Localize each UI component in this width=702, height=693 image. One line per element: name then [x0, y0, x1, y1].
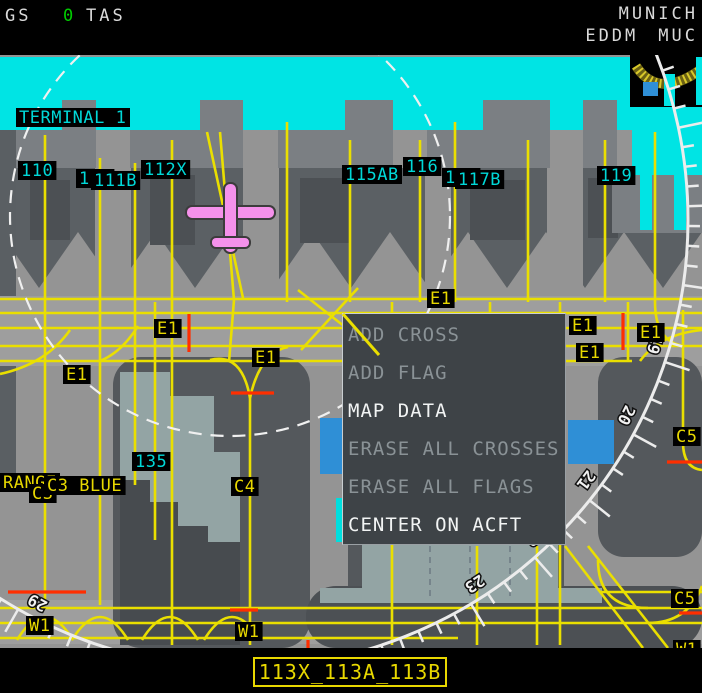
svg-text:115AB: 115AB: [345, 165, 399, 185]
tas-label: TAS: [86, 6, 126, 26]
svg-text:E1: E1: [255, 348, 276, 368]
map-label-e1: E1: [252, 348, 280, 368]
menu-item-add-cross[interactable]: ADD CROSS: [348, 316, 565, 354]
svg-text:E1: E1: [66, 365, 87, 385]
map-label-e1: E1: [569, 316, 597, 336]
airport-codes: EDDM MUC: [585, 26, 698, 46]
menu-item-center-on-acft[interactable]: CENTER ON ACFT: [348, 506, 565, 544]
blue-building-left: [320, 418, 344, 474]
map-label-e1: E1: [427, 289, 455, 309]
map-label-w1: W1: [235, 622, 263, 642]
menu-item-erase-all-crosses[interactable]: ERASE ALL CROSSES: [348, 430, 565, 468]
svg-text:TERMINAL 1: TERMINAL 1: [19, 108, 126, 128]
blue-building-small: [643, 82, 658, 96]
map-label-117b: 117B: [455, 170, 504, 190]
svg-text:C4: C4: [234, 477, 255, 497]
svg-text:119: 119: [600, 166, 632, 186]
svg-text:116: 116: [406, 157, 438, 177]
map-label-e1: E1: [637, 323, 665, 343]
blue-building-right: [568, 420, 614, 464]
map-label-115ab: 115AB: [342, 165, 402, 185]
map-label-c3-blue: C3 BLUE: [44, 476, 126, 496]
map-label-w1: W1: [673, 640, 701, 660]
menu-item-add-flag[interactable]: ADD FLAG: [348, 354, 565, 392]
airport-iata: MUC: [658, 26, 698, 46]
map-label-c5: C5: [671, 589, 699, 609]
map-label-c4: C4: [231, 477, 259, 497]
svg-text:E1: E1: [579, 343, 600, 363]
map-label-110: 110: [18, 161, 56, 181]
svg-text:112X: 112X: [144, 160, 187, 180]
svg-text:E1: E1: [640, 323, 661, 343]
svg-text:117B: 117B: [458, 170, 501, 190]
menu-item-map-data[interactable]: MAP DATA: [348, 392, 565, 430]
svg-text:C5: C5: [676, 427, 697, 447]
map-label-116: 116: [403, 157, 441, 177]
map-label-terminal-1: TERMINAL 1: [16, 108, 130, 128]
map-label-e1: E1: [154, 319, 182, 339]
gs-label: GS: [5, 6, 31, 26]
svg-text:111B: 111B: [94, 171, 137, 191]
svg-text:W1: W1: [29, 616, 50, 636]
svg-text:C5: C5: [674, 589, 695, 609]
svg-text:W1: W1: [238, 622, 259, 642]
svg-text:135: 135: [135, 452, 167, 472]
svg-text:W1: W1: [676, 640, 697, 660]
map-label-111b: 111B: [91, 171, 140, 191]
svg-text:E1: E1: [157, 319, 178, 339]
airport-name: MUNICH: [619, 4, 698, 24]
context-menu: ADD CROSSADD FLAGMAP DATAERASE ALL CROSS…: [342, 313, 566, 545]
map-label-119: 119: [597, 166, 635, 186]
svg-text:E1: E1: [572, 316, 593, 336]
map-label-w1: W1: [26, 616, 54, 636]
airport-icao: EDDM: [585, 26, 638, 46]
runway-taxiway-designator: 113X_113A_113B: [253, 657, 447, 687]
oans-display: { "header": { "gs_label": "GS", "gs_valu…: [0, 0, 702, 693]
svg-text:E1: E1: [430, 289, 451, 309]
menu-item-erase-all-flags[interactable]: ERASE ALL FLAGS: [348, 468, 565, 506]
svg-text:C3 BLUE: C3 BLUE: [47, 476, 122, 496]
gs-value: 0: [63, 6, 76, 26]
svg-text:110: 110: [21, 161, 53, 181]
map-label-e1: E1: [576, 343, 604, 363]
map-label-e1: E1: [63, 365, 91, 385]
map-label-112x: 112X: [141, 160, 190, 180]
map-label-c5: C5: [673, 427, 701, 447]
map-label-135: 135: [132, 452, 170, 472]
